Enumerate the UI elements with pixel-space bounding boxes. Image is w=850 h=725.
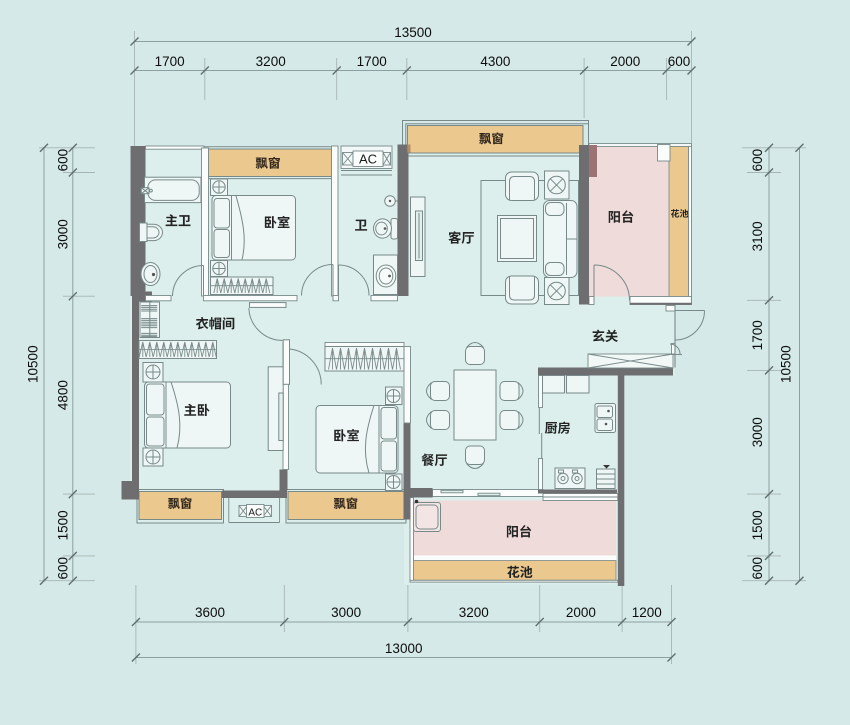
svg-text:2000: 2000 <box>566 605 596 620</box>
svg-text:3200: 3200 <box>459 605 489 620</box>
svg-text:3000: 3000 <box>56 219 71 249</box>
svg-text:3000: 3000 <box>750 417 765 447</box>
svg-text:3100: 3100 <box>750 221 765 251</box>
svg-text:1500: 1500 <box>750 510 765 540</box>
svg-text:600: 600 <box>750 557 765 580</box>
svg-text:600: 600 <box>668 54 691 69</box>
svg-text:13500: 13500 <box>394 25 432 40</box>
svg-text:10500: 10500 <box>26 345 41 383</box>
svg-text:1200: 1200 <box>632 605 662 620</box>
svg-text:3000: 3000 <box>331 605 361 620</box>
svg-text:3600: 3600 <box>195 605 225 620</box>
svg-text:1700: 1700 <box>750 320 765 350</box>
svg-text:AC: AC <box>359 152 377 167</box>
svg-text:10500: 10500 <box>779 345 794 383</box>
svg-text:4300: 4300 <box>480 54 510 69</box>
svg-text:13000: 13000 <box>385 641 423 656</box>
svg-text:2000: 2000 <box>610 54 640 69</box>
svg-text:AC: AC <box>248 508 262 519</box>
svg-text:1700: 1700 <box>357 54 387 69</box>
svg-text:3200: 3200 <box>256 54 286 69</box>
svg-text:600: 600 <box>56 149 71 172</box>
svg-text:600: 600 <box>56 557 71 580</box>
svg-text:600: 600 <box>750 149 765 172</box>
svg-text:4800: 4800 <box>56 380 71 410</box>
svg-text:1500: 1500 <box>56 510 71 540</box>
svg-text:1700: 1700 <box>155 54 185 69</box>
